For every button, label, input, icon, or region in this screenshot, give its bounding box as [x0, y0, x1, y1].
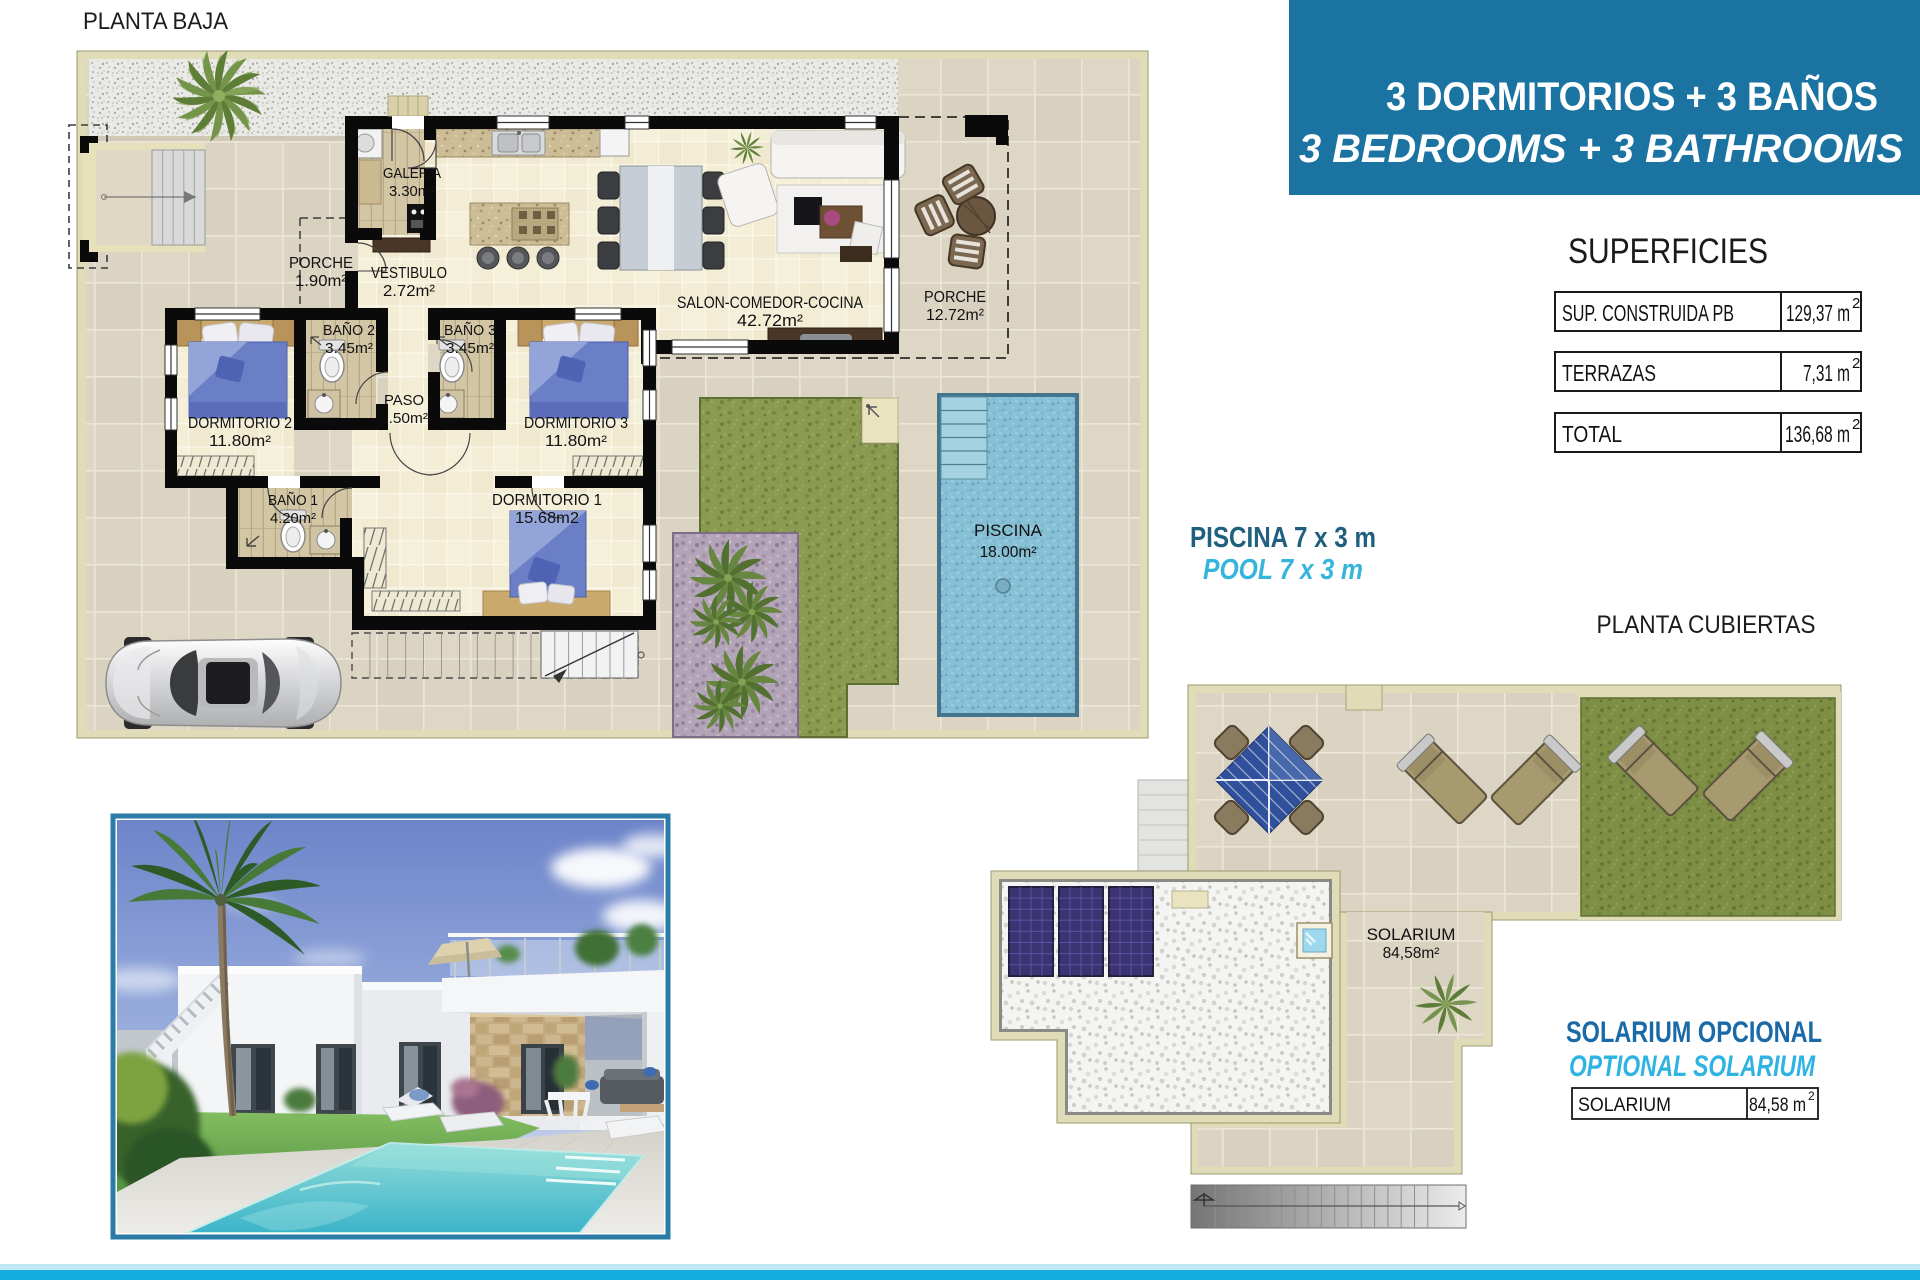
- svg-text:DORMITORIO 2: DORMITORIO 2: [188, 415, 292, 432]
- svg-text:TOTAL: TOTAL: [1562, 421, 1622, 447]
- svg-text:3.30m²: 3.30m²: [389, 184, 435, 200]
- svg-text:SUP. CONSTRUIDA PB: SUP. CONSTRUIDA PB: [1562, 300, 1734, 326]
- svg-text:SALON-COMEDOR-COCINA: SALON-COMEDOR-COCINA: [677, 294, 863, 312]
- svg-text:4.20m²: 4.20m²: [270, 511, 316, 527]
- svg-text:BAÑO 1: BAÑO 1: [268, 492, 318, 509]
- svg-text:PLANTA BAJA: PLANTA BAJA: [83, 8, 228, 35]
- svg-text:2: 2: [1852, 295, 1860, 312]
- svg-text:GALERIA: GALERIA: [383, 166, 441, 182]
- svg-text:18.00m²: 18.00m²: [980, 544, 1037, 561]
- svg-text:7,31 m: 7,31 m: [1803, 360, 1850, 386]
- svg-text:OPTIONAL SOLARIUM: OPTIONAL SOLARIUM: [1569, 1050, 1816, 1083]
- svg-text:DORMITORIO 3: DORMITORIO 3: [524, 415, 628, 432]
- svg-text:11.80m²: 11.80m²: [209, 433, 271, 450]
- svg-text:3 BEDROOMS + 3 BATHROOMS: 3 BEDROOMS + 3 BATHROOMS: [1299, 127, 1903, 171]
- svg-text:42.72m²: 42.72m²: [737, 312, 804, 330]
- svg-text:BAÑO 3: BAÑO 3: [444, 322, 496, 339]
- svg-text:1.90m²: 1.90m²: [295, 273, 348, 290]
- svg-text:POOL 7 x 3 m: POOL 7 x 3 m: [1203, 554, 1363, 586]
- svg-text:PORCHE: PORCHE: [289, 255, 353, 272]
- svg-text:DORMITORIO 1: DORMITORIO 1: [492, 492, 602, 509]
- svg-text:SOLARIUM OPCIONAL: SOLARIUM OPCIONAL: [1566, 1016, 1822, 1049]
- svg-text:2.72m²: 2.72m²: [383, 283, 436, 300]
- svg-text:PORCHE: PORCHE: [924, 289, 986, 306]
- svg-text:BAÑO 2: BAÑO 2: [323, 322, 375, 339]
- svg-text:84,58m²: 84,58m²: [1383, 945, 1440, 962]
- svg-text:2: 2: [1808, 1089, 1815, 1103]
- svg-text:3.50m²: 3.50m²: [380, 411, 428, 427]
- svg-text:3.45m²: 3.45m²: [325, 341, 373, 357]
- svg-text:2: 2: [1852, 355, 1860, 372]
- svg-text:12.72m²: 12.72m²: [926, 307, 985, 324]
- svg-text:SOLARIUM: SOLARIUM: [1367, 925, 1456, 944]
- svg-text:3.45m²: 3.45m²: [446, 341, 494, 357]
- svg-text:129,37 m: 129,37 m: [1786, 300, 1850, 326]
- svg-text:11.80m²: 11.80m²: [545, 433, 607, 450]
- svg-text:SOLARIUM: SOLARIUM: [1578, 1095, 1671, 1116]
- svg-text:VESTIBULO: VESTIBULO: [371, 265, 447, 282]
- svg-text:2: 2: [1852, 416, 1860, 433]
- svg-text:84,58 m: 84,58 m: [1749, 1095, 1806, 1116]
- svg-text:PISCINA: PISCINA: [974, 521, 1043, 540]
- svg-text:PASO: PASO: [384, 393, 424, 409]
- svg-text:136,68 m: 136,68 m: [1785, 421, 1850, 447]
- svg-text:15.68m2: 15.68m2: [515, 510, 579, 527]
- svg-text:TERRAZAS: TERRAZAS: [1562, 360, 1656, 386]
- svg-text:PLANTA CUBIERTAS: PLANTA CUBIERTAS: [1597, 611, 1816, 639]
- svg-text:SUPERFICIES: SUPERFICIES: [1568, 232, 1768, 271]
- svg-text:3 DORMITORIOS + 3 BAÑOS: 3 DORMITORIOS + 3 BAÑOS: [1386, 73, 1878, 119]
- svg-text:PISCINA 7 x 3 m: PISCINA 7 x 3 m: [1190, 522, 1376, 554]
